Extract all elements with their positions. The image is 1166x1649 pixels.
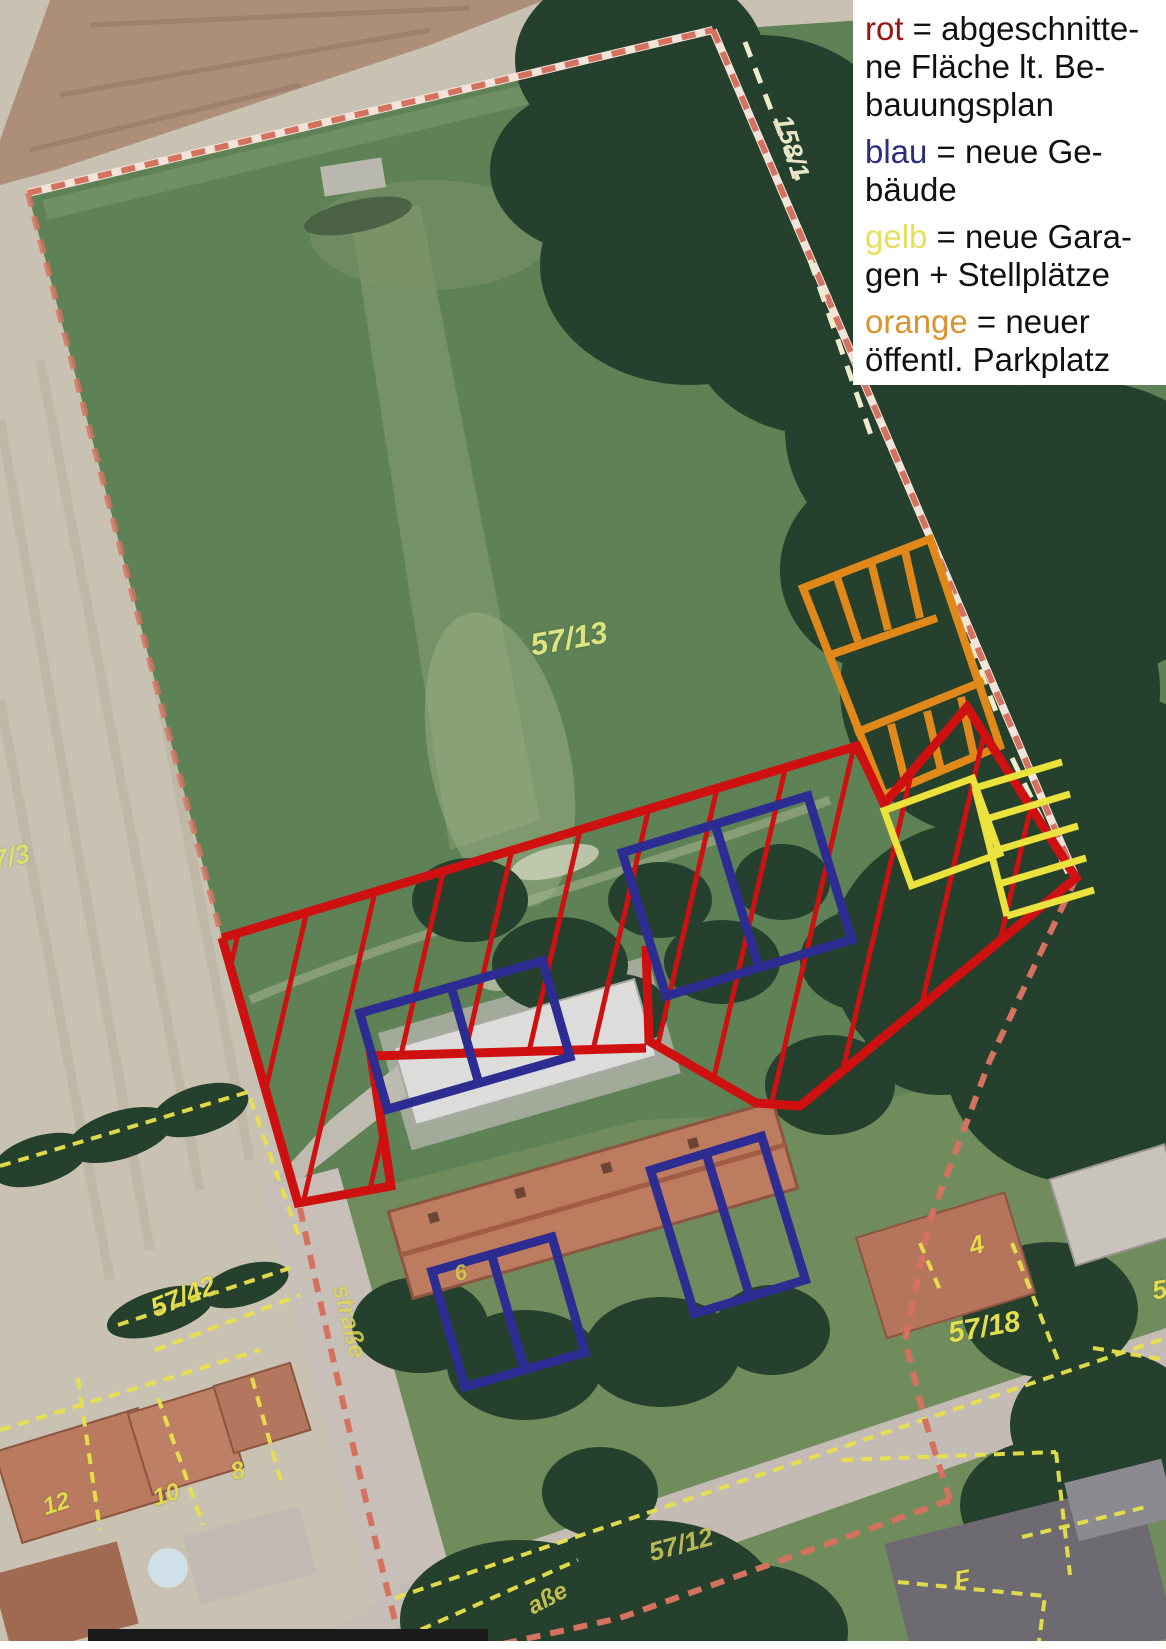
legend-term-rot: rot (865, 10, 904, 47)
legend-entry-blau: blau = neue Ge- bäude (865, 133, 1162, 209)
legend-term-blau: blau (865, 133, 927, 170)
legend-term-gelb: gelb (865, 218, 927, 255)
legend: rot = abgeschnitte- ne Fläche lt. Be- ba… (853, 0, 1166, 385)
legend-entry-gelb: gelb = neue Gara- gen + Stellplätze (865, 218, 1162, 294)
legend-term-orange: orange (865, 303, 968, 340)
aerial-photo-plan: 158/1 57/13 7/3 57/42 4 57/18 5 57/12 12… (0, 0, 1166, 1649)
legend-entry-orange: orange = neuer öffentl. Parkplatz (865, 303, 1162, 379)
legend-entry-rot: rot = abgeschnitte- ne Fläche lt. Be- ba… (865, 10, 1162, 124)
